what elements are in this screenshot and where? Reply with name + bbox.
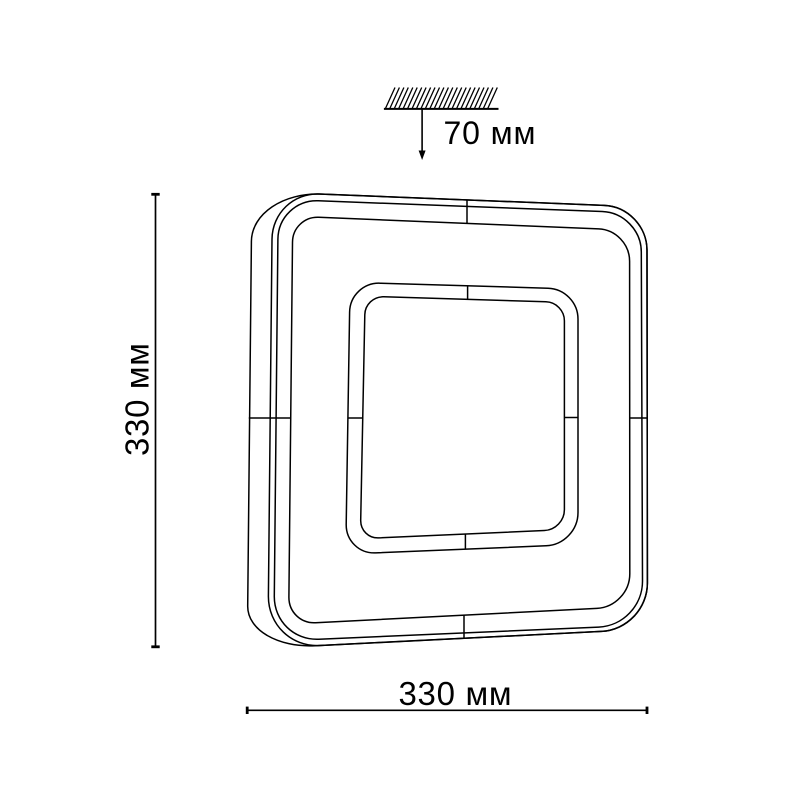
svg-text:330 мм: 330 мм: [399, 675, 512, 712]
svg-text:330 мм: 330 мм: [118, 343, 155, 456]
svg-text:70 мм: 70 мм: [444, 115, 536, 151]
